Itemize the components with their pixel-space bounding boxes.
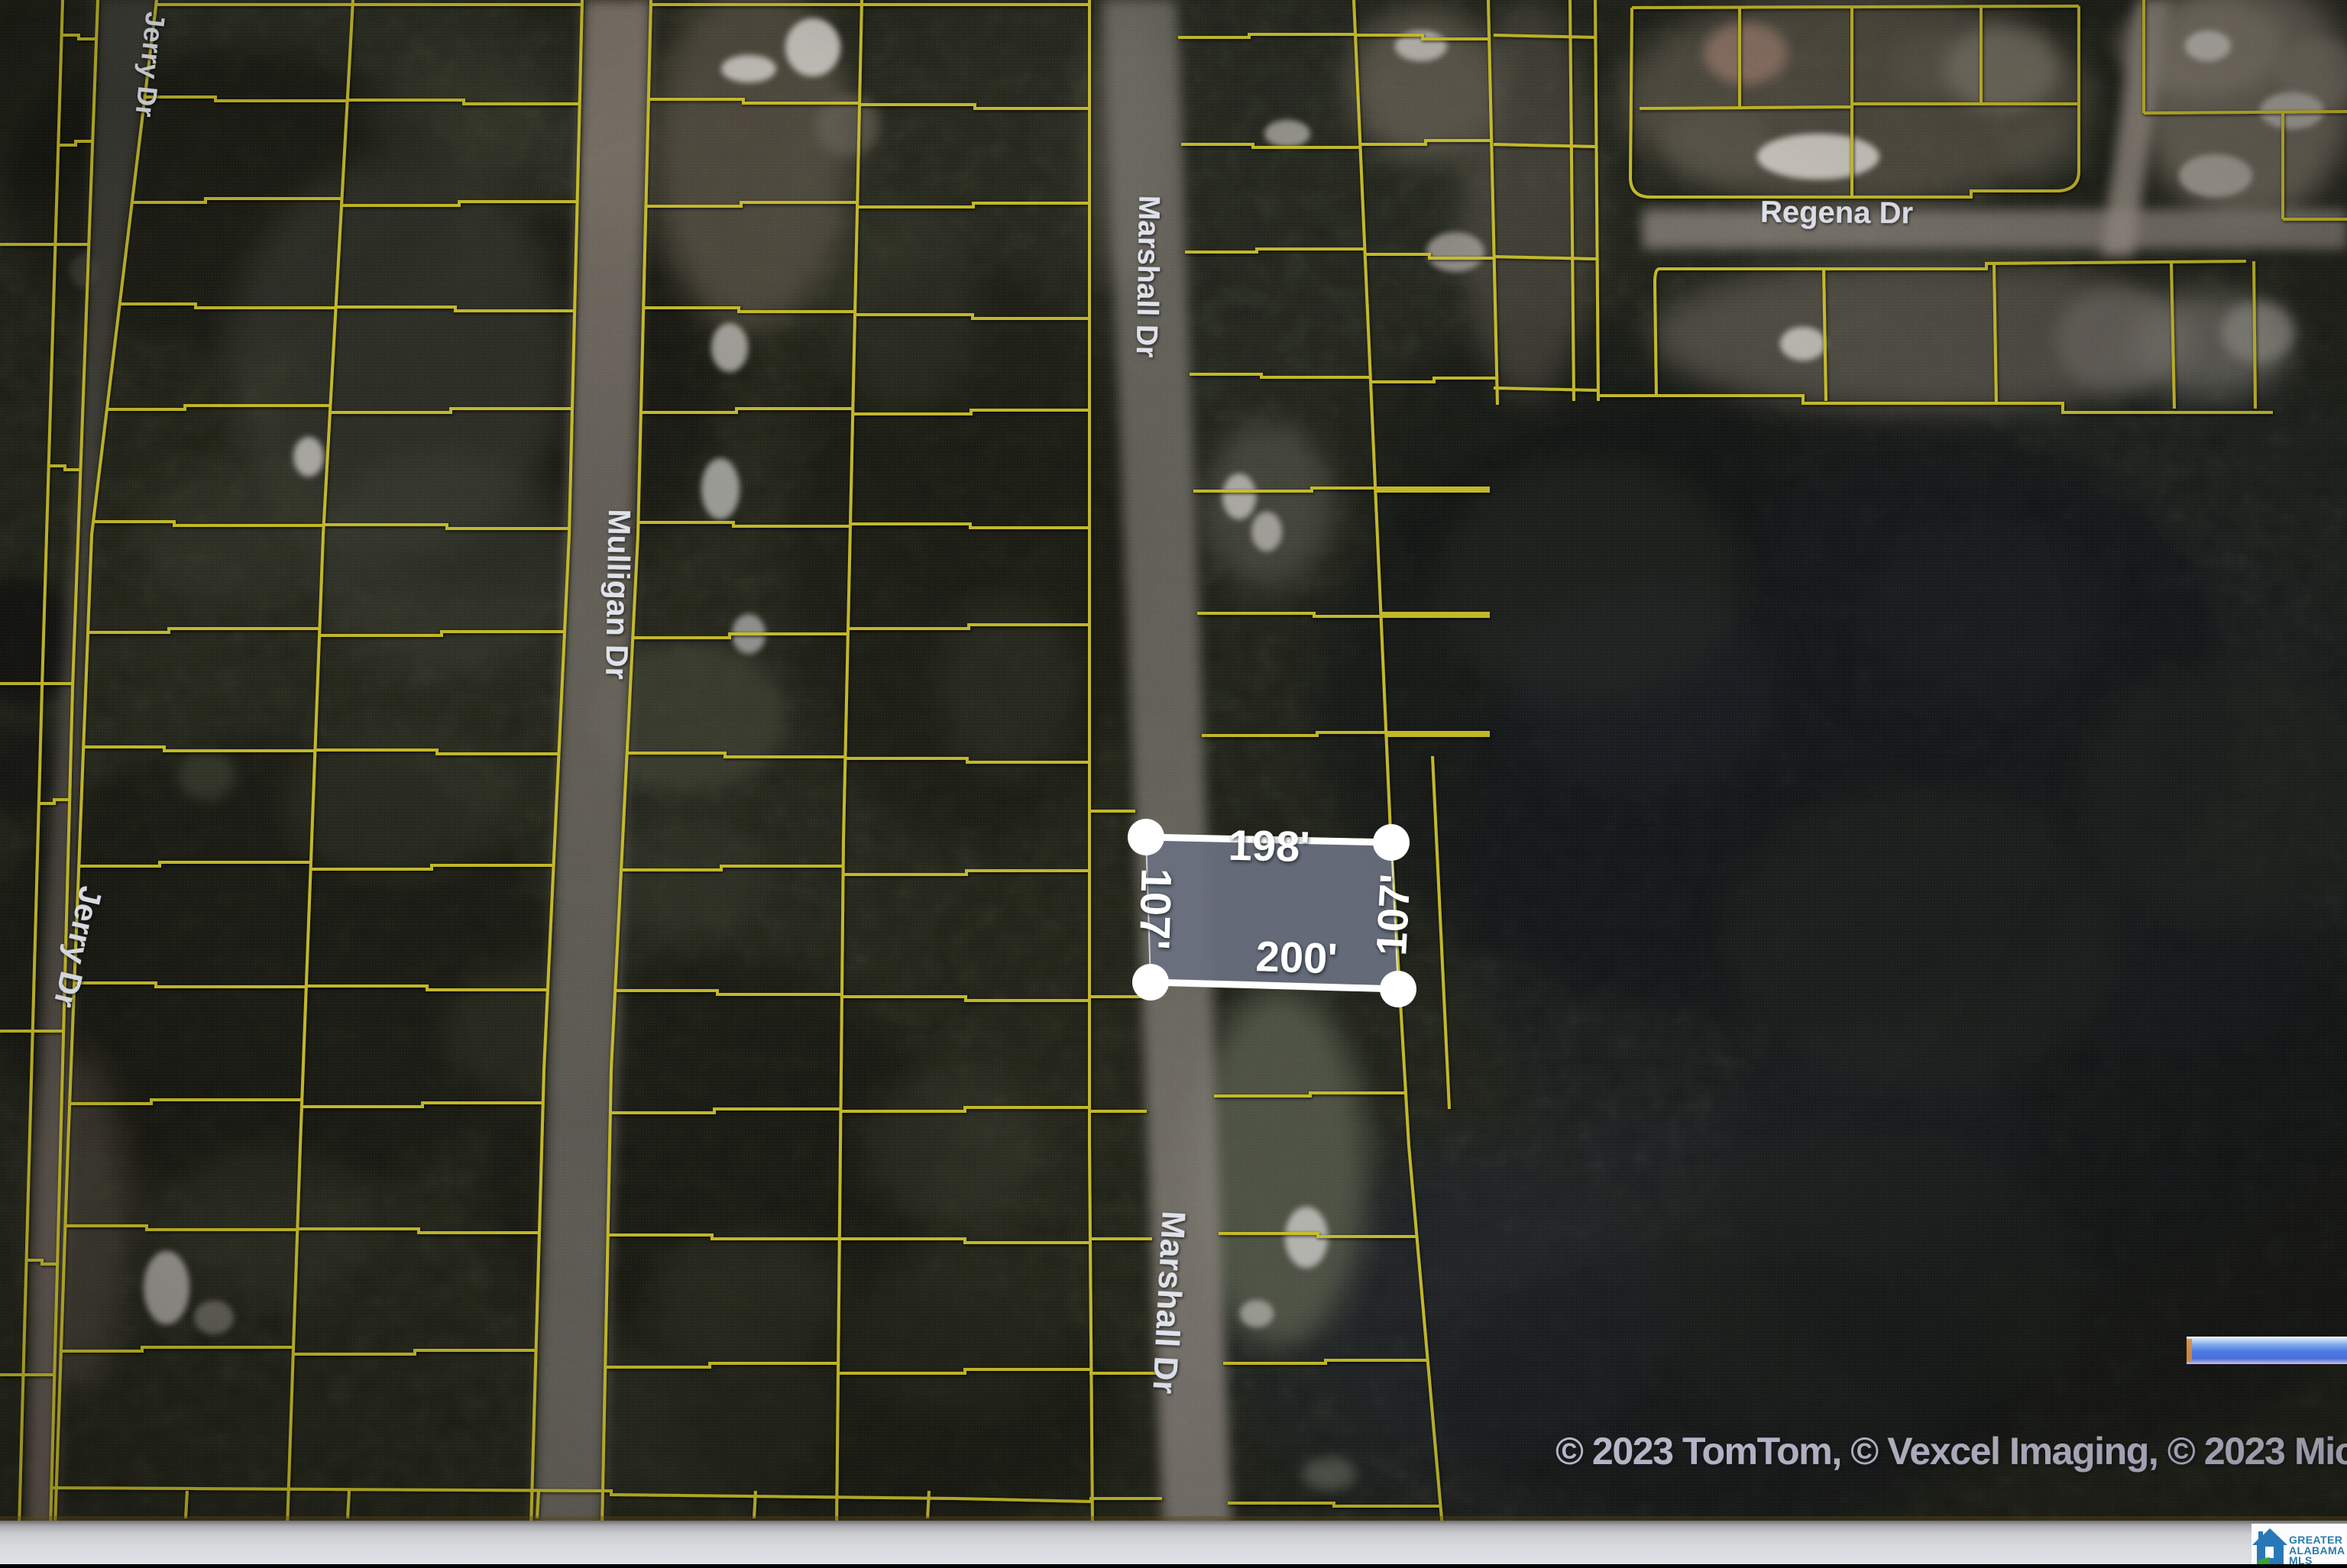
svg-text:MLS: MLS (2289, 1554, 2313, 1564)
